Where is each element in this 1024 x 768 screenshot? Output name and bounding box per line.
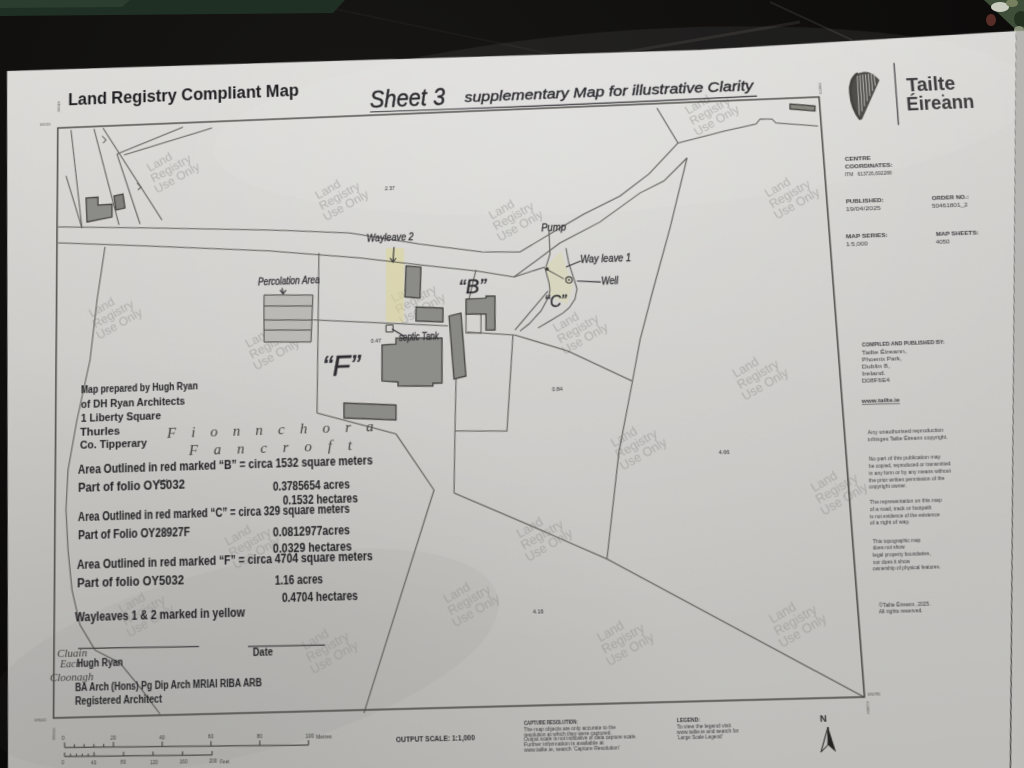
svg-text:40: 40 [91,760,97,766]
svg-text:Hugh Ryan: Hugh Ryan [77,657,123,671]
svg-text:100: 100 [305,733,314,739]
svg-text:19/04/2025: 19/04/2025 [846,205,881,213]
svg-text:613864: 613864 [865,701,871,714]
svg-text:copyright owner.: copyright owner. [869,483,907,491]
svg-text:1.16 acres: 1.16 acres [275,574,323,589]
svg-text:Wayleave 2: Wayleave 2 [366,231,413,245]
svg-text:80: 80 [121,759,127,765]
svg-text:613864: 613864 [818,83,823,95]
svg-text:200119: 200119 [57,101,61,112]
svg-text:“B”: “B” [458,276,488,299]
svg-text:200: 200 [209,758,218,764]
svg-text:160: 160 [180,759,189,765]
svg-text:Sheet 3: Sheet 3 [369,83,445,112]
svg-text:0.0812977acres: 0.0812977acres [273,525,350,541]
svg-text:0.4704 hectares: 0.4704 hectares [282,590,358,606]
svg-text:60: 60 [208,734,214,740]
svg-text:Well: Well [601,275,619,287]
svg-text:4.16: 4.16 [533,609,544,616]
svg-text:“F”: “F” [322,348,363,383]
svg-text:1:5,000: 1:5,000 [846,241,868,248]
svg-text:does not show: does not show [873,545,906,553]
svg-text:2.37: 2.37 [385,185,395,192]
svg-text:Way leave 1: Way leave 1 [580,251,631,266]
svg-text:septic Tank: septic Tank [399,331,440,344]
svg-text:698441: 698441 [34,718,46,723]
svg-text:Feet: Feet [220,759,230,765]
svg-text:120: 120 [150,759,159,765]
svg-text:80: 80 [257,733,263,739]
svg-text:Pump: Pump [541,221,566,235]
svg-text:0.3785654 acres: 0.3785654 acres [273,479,350,495]
svg-text:nor does it show: nor does it show [873,558,911,566]
svg-text:Percolation Area: Percolation Area [258,275,320,289]
svg-text:D08F6E4: D08F6E4 [862,378,891,386]
svg-text:0: 0 [62,735,65,741]
svg-text:692111: 692111 [40,122,51,126]
svg-text:N: N [819,714,827,725]
svg-text:of a right of way.: of a right of way. [870,519,910,527]
svg-text:All rights reserved.: All rights reserved. [879,608,923,616]
svg-text:40: 40 [159,734,165,740]
svg-text:4.66: 4.66 [719,449,730,456]
svg-text:Date: Date [253,646,273,659]
svg-text:CENTRE: CENTRE [845,156,872,163]
svg-text:“C”: “C” [544,294,568,312]
svg-text:‘Large Scale Legend’: ‘Large Scale Legend’ [677,734,723,741]
svg-text:Co. Tipperary: Co. Tipperary [80,438,147,452]
svg-text:690785: 690785 [868,692,881,697]
svg-text:0.47: 0.47 [371,338,382,345]
svg-text:Registered Architect: Registered Architect [75,694,162,709]
svg-text:4050: 4050 [936,239,951,246]
svg-text:Metres: Metres [316,734,333,740]
svg-text:Thurles: Thurles [80,426,120,439]
svg-text:Ireland.: Ireland. [862,371,886,378]
svg-text:Éireann: Éireann [905,89,975,115]
svg-text:0.84: 0.84 [552,386,563,393]
svg-text:50461801_2: 50461801_2 [932,202,968,210]
svg-text:Dublin 8,: Dublin 8, [862,364,890,371]
svg-text:20: 20 [110,735,116,741]
svg-text:200080: 200080 [51,727,55,740]
